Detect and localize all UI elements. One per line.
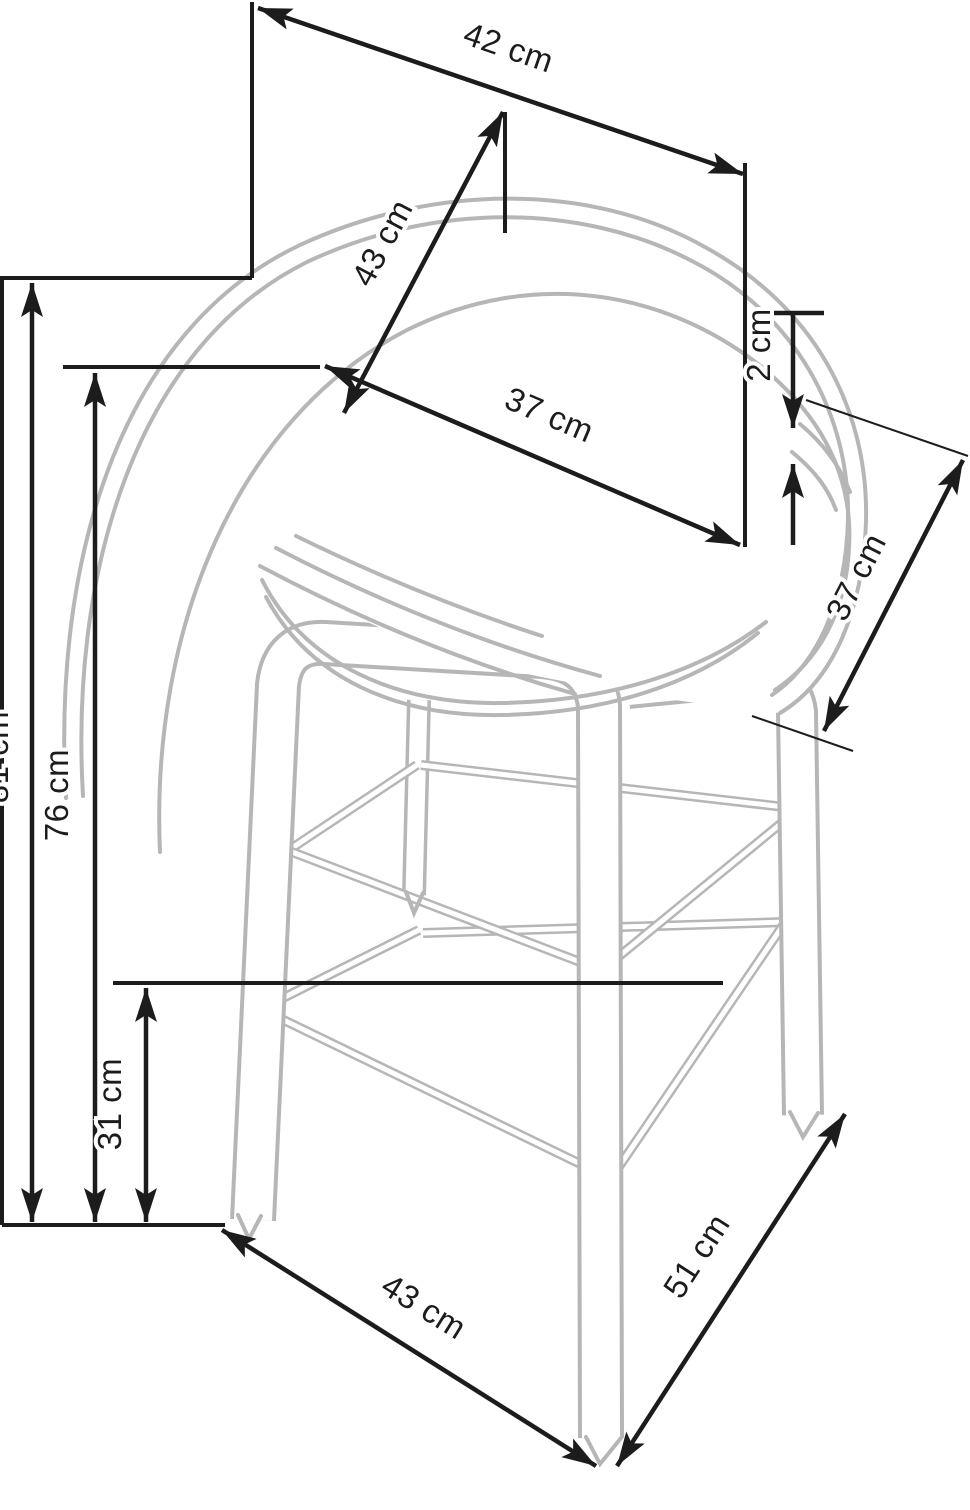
dimension-total-height: 81 cm bbox=[0, 283, 32, 1222]
dimension-seat-height: 76 cm bbox=[38, 373, 95, 1222]
dimension-diagram: 42 cm 43 cm 37 cm 2 cm 37 cm 81 cm 76 cm… bbox=[0, 0, 970, 1510]
dimension-label: 31 cm bbox=[91, 1058, 128, 1150]
dimension-label: 81 cm bbox=[0, 711, 15, 803]
stool-upper-footrest-ring bbox=[292, 765, 795, 965]
dimension-label: 51 cm bbox=[656, 1207, 737, 1305]
dimension-label: 42 cm bbox=[459, 15, 558, 80]
diagram-canvas: 42 cm 43 cm 37 cm 2 cm 37 cm 81 cm 76 cm… bbox=[0, 0, 970, 1505]
dimension-seat-top-width: 42 cm bbox=[258, 8, 743, 174]
stool-right-frame bbox=[628, 676, 803, 1115]
dimension-footrest-height: 31 cm bbox=[91, 988, 146, 1222]
dimension-label: 2 cm bbox=[740, 308, 777, 382]
stool-lower-footrest-ring bbox=[263, 918, 788, 1174]
stool-rear-leg bbox=[414, 700, 419, 895]
dimension-base-width: 43 cm bbox=[222, 1230, 596, 1466]
dimension-label: 76 cm bbox=[38, 749, 75, 841]
dimension-base-depth: 51 cm bbox=[617, 1114, 845, 1466]
